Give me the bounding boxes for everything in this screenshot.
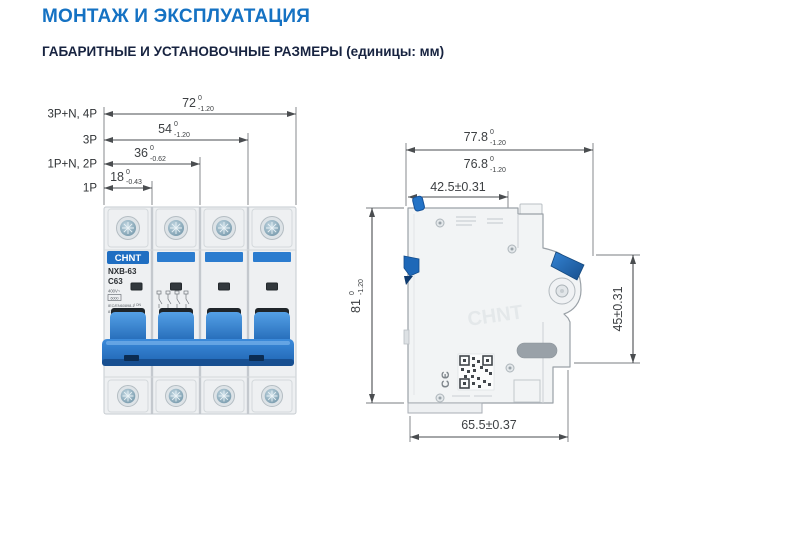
din-foot <box>408 403 482 413</box>
dim-76-8-lower-tol: -1.20 <box>490 167 506 174</box>
model-label: NXB-63 <box>108 267 137 276</box>
rating-label: C63 <box>108 277 123 286</box>
face-blue-bar <box>253 252 291 262</box>
dim-81-lower-tol: -1.20 <box>358 279 365 295</box>
pole-label-2p: 1P+N, 2P <box>47 159 97 171</box>
dim-right-45: 45±0.31 <box>611 255 636 363</box>
dim-76-8-value: 76.8 <box>464 157 488 171</box>
dim-76-8-upper-tol: 0 <box>490 156 494 163</box>
dim-65-5-value: 65.5±0.37 <box>461 418 517 432</box>
dim-54-value: 54 <box>158 122 172 136</box>
pole-label-1p: 1P <box>83 183 97 195</box>
screw-icon <box>166 386 187 407</box>
dim-18-upper-tol: 0 <box>126 169 130 176</box>
dim-top-42-5: 42.5±0.31 <box>408 180 508 200</box>
grip-slot <box>517 343 557 358</box>
dim-18-lower-tol: -0.43 <box>126 179 142 186</box>
screw-icon <box>117 217 140 240</box>
dim-54-upper-tol: 0 <box>174 121 178 128</box>
dim-width-18: 18 0 -0.43 1P <box>83 169 152 195</box>
indicator-window <box>267 283 278 290</box>
dim-54-lower-tol: -1.20 <box>174 132 190 139</box>
screw-icon <box>118 386 139 407</box>
indicator-window <box>131 283 142 290</box>
rivet <box>508 245 516 253</box>
breaker-front-illustration: CHNT NXB-63 C63 400V~ 6000 IEC/EN60898-1… <box>102 207 296 414</box>
dim-36-upper-tol: 0 <box>150 145 154 152</box>
dim-72-upper-tol: 0 <box>198 95 202 102</box>
qr-code <box>458 354 494 390</box>
dim-height-81: 81 0 -1.20 <box>349 208 375 403</box>
dim-18-value: 18 <box>110 170 124 184</box>
bottom-terminal <box>514 380 540 402</box>
catalog-page: МОНТАЖ И ЭКСПЛУАТАЦИЯ ГАБАРИТНЫЕ И УСТАН… <box>0 0 785 538</box>
svg-text:6000: 6000 <box>111 296 119 300</box>
screw-boss <box>549 278 575 304</box>
chint-logo: CHNT <box>107 251 149 264</box>
dim-width-36: 36 0 -0.62 1P+N, 2P <box>47 145 200 171</box>
face-blue-bar <box>205 252 243 262</box>
rivet <box>436 219 444 227</box>
ce-mark: CЄ <box>440 370 452 388</box>
dim-77-8-upper-tol: 0 <box>490 129 494 136</box>
on-label: I ON <box>134 303 142 307</box>
dimension-drawings: 72 0 -1.20 3P+N, 4P 54 0 -1.20 3P 36 <box>0 0 785 538</box>
indicator-window <box>219 283 230 290</box>
dim-81-value: 81 <box>349 299 363 313</box>
rivet <box>436 394 444 402</box>
pole-label-3p: 3P <box>83 135 97 147</box>
indicator-window <box>171 283 182 290</box>
standard-label: IEC/EN60898-1 <box>108 304 135 308</box>
top-terminal-cap <box>520 204 542 214</box>
dim-depth-76-8: 76.8 0 -1.20 <box>464 156 506 174</box>
breaker-side-illustration: CHNT <box>404 196 584 413</box>
toggle-tie-bar <box>102 339 294 366</box>
dim-bottom-65-5: 65.5±0.37 <box>410 418 568 440</box>
dim-42-5-value: 42.5±0.31 <box>430 180 486 194</box>
dim-77-8-lower-tol: -1.20 <box>490 140 506 147</box>
dim-45-value: 45±0.31 <box>611 286 625 331</box>
rivet <box>506 364 514 372</box>
dim-width-54: 54 0 -1.20 3P <box>83 121 248 147</box>
rail-slot <box>404 330 409 344</box>
pole-label-4p: 3P+N, 4P <box>47 109 97 121</box>
dim-81-upper-tol: 0 <box>349 291 356 295</box>
screw-icon <box>262 386 283 407</box>
screw-icon <box>261 217 284 240</box>
front-view-drawing: 72 0 -1.20 3P+N, 4P 54 0 -1.20 3P 36 <box>47 95 296 414</box>
voltage-label: 400V~ <box>108 289 121 294</box>
face-blue-bar <box>157 252 195 262</box>
dim-72-value: 72 <box>182 96 196 110</box>
screw-icon <box>213 217 236 240</box>
screw-icon <box>165 217 188 240</box>
side-view-drawing: 77.8 0 -1.20 76.8 0 -1.20 42.5±0.31 <box>349 129 640 442</box>
dim-depth-77-8: 77.8 0 -1.20 <box>406 129 593 153</box>
dim-36-lower-tol: -0.62 <box>150 156 166 163</box>
brand-label: CHNT <box>115 253 142 264</box>
dim-72-lower-tol: -1.20 <box>198 106 214 113</box>
dim-width-72: 72 0 -1.20 3P+N, 4P <box>47 95 296 121</box>
screw-icon <box>214 386 235 407</box>
dim-36-value: 36 <box>134 146 148 160</box>
dim-77-8-value: 77.8 <box>464 130 488 144</box>
